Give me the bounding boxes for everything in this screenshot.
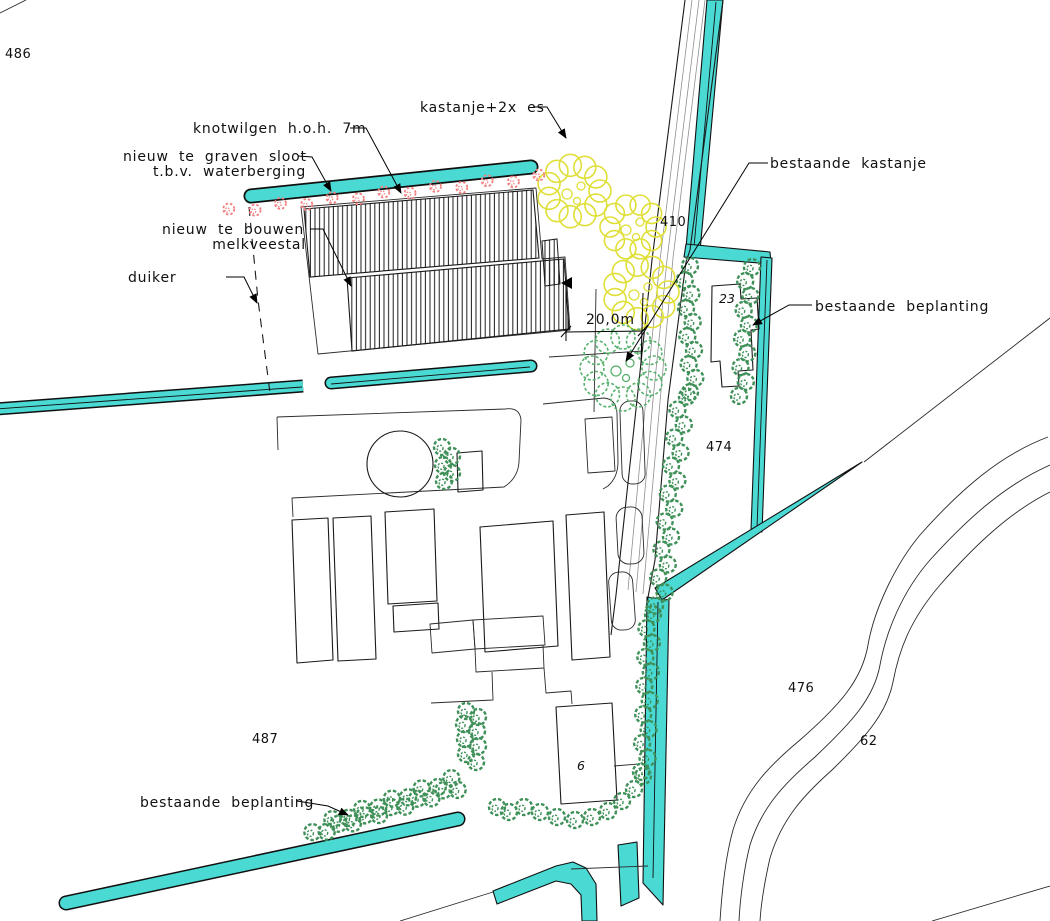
tree-canopy-lobe: [546, 200, 568, 222]
tree-canopy-detail: [623, 375, 630, 382]
bottom-boundary: [400, 892, 493, 921]
parcel-line-vert: [594, 289, 596, 412]
tree-symbol-inner: [689, 348, 695, 354]
tree-symbol: [584, 809, 600, 825]
tree-symbol-inner: [461, 752, 467, 758]
tree-symbol: [434, 439, 450, 455]
label-bouwen-2: melkveestal: [212, 237, 306, 253]
yard-entrance: [543, 398, 618, 489]
tree-symbol: [443, 770, 459, 786]
tree-symbol-inner: [471, 760, 477, 766]
tree-symbol: [663, 458, 679, 474]
label-beplanting-right: bestaande beplanting: [815, 299, 989, 315]
tree-symbol: [626, 781, 642, 797]
corner-tick-top-left: [0, 0, 26, 13]
tree-symbol-inner: [681, 306, 687, 312]
tree-symbol: [532, 804, 548, 820]
tree-symbol-inner: [660, 520, 666, 526]
tree-canopy-detail: [577, 182, 585, 190]
tree-canopy-detail: [644, 283, 652, 291]
tree-symbol-inner: [629, 787, 635, 793]
tree-canopy-detail: [626, 359, 634, 367]
tree-symbol-inner: [734, 394, 740, 400]
tree-symbol: [682, 258, 698, 274]
stream-line-3: [760, 492, 1050, 921]
tree-symbol-inner: [461, 709, 467, 715]
tree-symbol: [501, 804, 517, 820]
tree-symbol-inner: [453, 788, 459, 794]
stream: [720, 437, 1050, 921]
tree-symbol-inner: [519, 805, 525, 811]
label-dimension: 20,0m: [586, 312, 635, 328]
tree-symbol-inner: [669, 436, 675, 442]
label-bestaande-kastanje: bestaande kastanje: [770, 156, 927, 172]
tree-symbol-inner: [679, 423, 685, 429]
house-6: [556, 703, 617, 804]
tree-canopy-lobe: [580, 356, 604, 380]
tree-symbol-inner: [690, 376, 696, 382]
tree-symbol-inner: [437, 445, 443, 451]
tree-symbol: [660, 486, 676, 502]
leader-duiker: [226, 277, 257, 303]
silo: [367, 431, 433, 497]
tree-symbol-inner: [438, 463, 444, 469]
tree-symbol: [666, 430, 682, 446]
tree-canopy-detail: [641, 299, 648, 306]
shed-a: [292, 518, 333, 663]
boundary-diagonal-right: [864, 318, 1050, 462]
tree-canopy-detail: [629, 290, 639, 300]
shed-c: [385, 509, 437, 604]
parcel-487: 487: [252, 732, 278, 747]
tree-symbol-inner: [742, 351, 748, 357]
dim-line: [566, 331, 643, 332]
tree-canopy-lobe: [589, 180, 611, 202]
stream-line-2: [739, 465, 1050, 921]
tree-canopy-lobe: [612, 261, 634, 283]
site-plan: 486 knotwilgen h.o.h. 7m nieuw te graven…: [0, 0, 1050, 921]
knotwilg-symbol-inner: [328, 196, 332, 200]
corner-line-bottom-right: [932, 886, 1050, 921]
house-number-23: 23: [719, 291, 735, 306]
barn-roof-lower: [347, 259, 569, 351]
knotwilg-symbol-inner: [355, 198, 359, 202]
tree-symbol-inner: [740, 279, 746, 285]
tree-symbol-inner: [638, 713, 644, 719]
tree-canopy-lobe: [611, 387, 635, 411]
labels: 486 knotwilgen h.o.h. 7m nieuw te graven…: [5, 47, 989, 811]
tree-canopy-detail: [574, 198, 581, 205]
shed-e: [566, 512, 610, 660]
tree-symbol-inner: [741, 380, 747, 386]
tree-symbol-inner: [739, 308, 745, 314]
knotwilg-symbol-inner: [510, 181, 514, 185]
stream-line-1: [720, 437, 1048, 921]
knotwilg-symbol-inner: [406, 192, 410, 196]
tree-symbol-inner: [672, 479, 678, 485]
tree-symbol: [669, 402, 685, 418]
bottom-strip-ditch: [618, 842, 639, 906]
roads-and-parcels: [0, 0, 1050, 921]
tree-symbol-inner: [446, 776, 452, 782]
tree-canopy-lobe: [559, 154, 581, 176]
house-number-6: 6: [577, 758, 585, 773]
knotwilg-symbol-inner: [535, 174, 539, 178]
tree-symbol-inner: [640, 655, 646, 661]
tree-symbol-inner: [639, 684, 645, 690]
tree-canopy-lobe: [611, 325, 635, 349]
tree-symbol-inner: [535, 810, 541, 816]
tree-canopy-lobe: [546, 160, 568, 182]
tree-symbol: [600, 803, 616, 819]
knotwilg-symbol-inner: [458, 186, 462, 190]
new-barn: [301, 188, 572, 354]
tree-symbol-inner: [684, 362, 690, 368]
label-kastanje-es: kastanje+2x es: [420, 100, 545, 116]
label-bouwen-1: nieuw te bouwen: [162, 222, 304, 238]
tree-symbol-inner: [459, 722, 465, 728]
label-beplanting-bottom: bestaande beplanting: [140, 795, 314, 811]
tree-symbol-inner: [744, 323, 750, 329]
tree-canopy-detail: [562, 189, 572, 199]
knotwilg-symbol-inner: [277, 202, 281, 206]
tree-symbol: [549, 809, 565, 825]
knotwilg-symbol-inner: [251, 209, 255, 213]
tree-canopy-lobe: [657, 281, 679, 303]
tree-symbol-inner: [669, 507, 675, 513]
tree-symbol-inner: [460, 737, 466, 743]
shed-b: [333, 516, 376, 661]
parcel-476: 476: [788, 681, 814, 696]
parcel-486: 486: [5, 47, 31, 62]
tree-canopy-lobe: [559, 206, 581, 228]
tree-symbol: [414, 780, 430, 796]
parcel-474: 474: [706, 440, 732, 455]
shed-h: [430, 620, 475, 653]
tree-symbol-inner: [617, 799, 623, 805]
tree-symbol-inner: [656, 548, 662, 554]
tree-symbol-inner: [400, 805, 406, 811]
barn-annex: [542, 239, 560, 286]
tree-canopy-lobe: [604, 273, 626, 295]
tree-canopy-detail: [611, 366, 621, 376]
tree-symbol-inner: [426, 796, 432, 802]
tree-symbol-inner: [653, 576, 659, 582]
tree-symbol-inner: [473, 715, 479, 721]
tree-symbol: [567, 812, 583, 828]
shed-steps-3: [544, 668, 572, 704]
tree-canopy-lobe: [538, 173, 560, 195]
tree-symbol-inner: [688, 320, 694, 326]
entrance-island: [585, 417, 615, 473]
tree-canopy-detail: [621, 225, 631, 235]
yard-drive-top: [277, 409, 521, 517]
shed-d: [480, 521, 558, 652]
tree-symbol-inner: [439, 479, 445, 485]
tree-canopy-lobe: [600, 217, 620, 237]
label-sloot-2: t.b.v. waterberging: [153, 164, 306, 180]
parcel-62: 62: [860, 734, 878, 749]
tree-canopy-detail: [636, 218, 644, 226]
tree-symbol: [516, 799, 532, 815]
tree-symbol-inner: [492, 805, 498, 811]
tree-symbol-inner: [672, 408, 678, 414]
tree-symbol-inner: [686, 292, 692, 298]
tree-symbol-inner: [663, 492, 669, 498]
tree-symbol-inner: [504, 810, 510, 816]
site-plan-drawing: 486 knotwilgen h.o.h. 7m nieuw te graven…: [0, 0, 1050, 921]
bottom-bend-ditch: [493, 862, 597, 921]
tree-symbol-inner: [603, 809, 609, 815]
tree-symbol-inner: [307, 830, 313, 836]
label-knotwilgen: knotwilgen h.o.h. 7m: [193, 121, 367, 137]
tree-symbol-inner: [676, 451, 682, 457]
tree-symbol-inner: [682, 334, 688, 340]
tree-symbol-inner: [637, 741, 643, 747]
tree-canopy-lobe: [626, 254, 648, 276]
shed-c2: [393, 603, 439, 632]
tree-symbol-inner: [666, 535, 672, 541]
tree-symbol-inner: [322, 830, 328, 836]
label-sloot-1: nieuw te graven sloot: [123, 149, 307, 165]
label-duiker: duiker: [128, 270, 176, 286]
tree-symbol-inner: [552, 815, 558, 821]
knotwilg-symbol-inner: [483, 179, 487, 183]
tree-symbol-inner: [666, 464, 672, 470]
tree-symbol-inner: [587, 815, 593, 821]
tree-symbol-inner: [570, 818, 576, 824]
shed-steps-2: [431, 672, 493, 703]
tree-symbol-inner: [663, 563, 669, 569]
knotwilg-symbol-inner: [225, 208, 229, 212]
tree-symbol-inner: [747, 265, 753, 271]
parcel-410: 410: [660, 215, 686, 230]
knotwilg-symbol-inner: [380, 191, 384, 195]
tree-symbol-inner: [737, 337, 743, 343]
tree-symbol: [384, 791, 400, 807]
knotwilg-symbol-inner: [432, 185, 436, 189]
